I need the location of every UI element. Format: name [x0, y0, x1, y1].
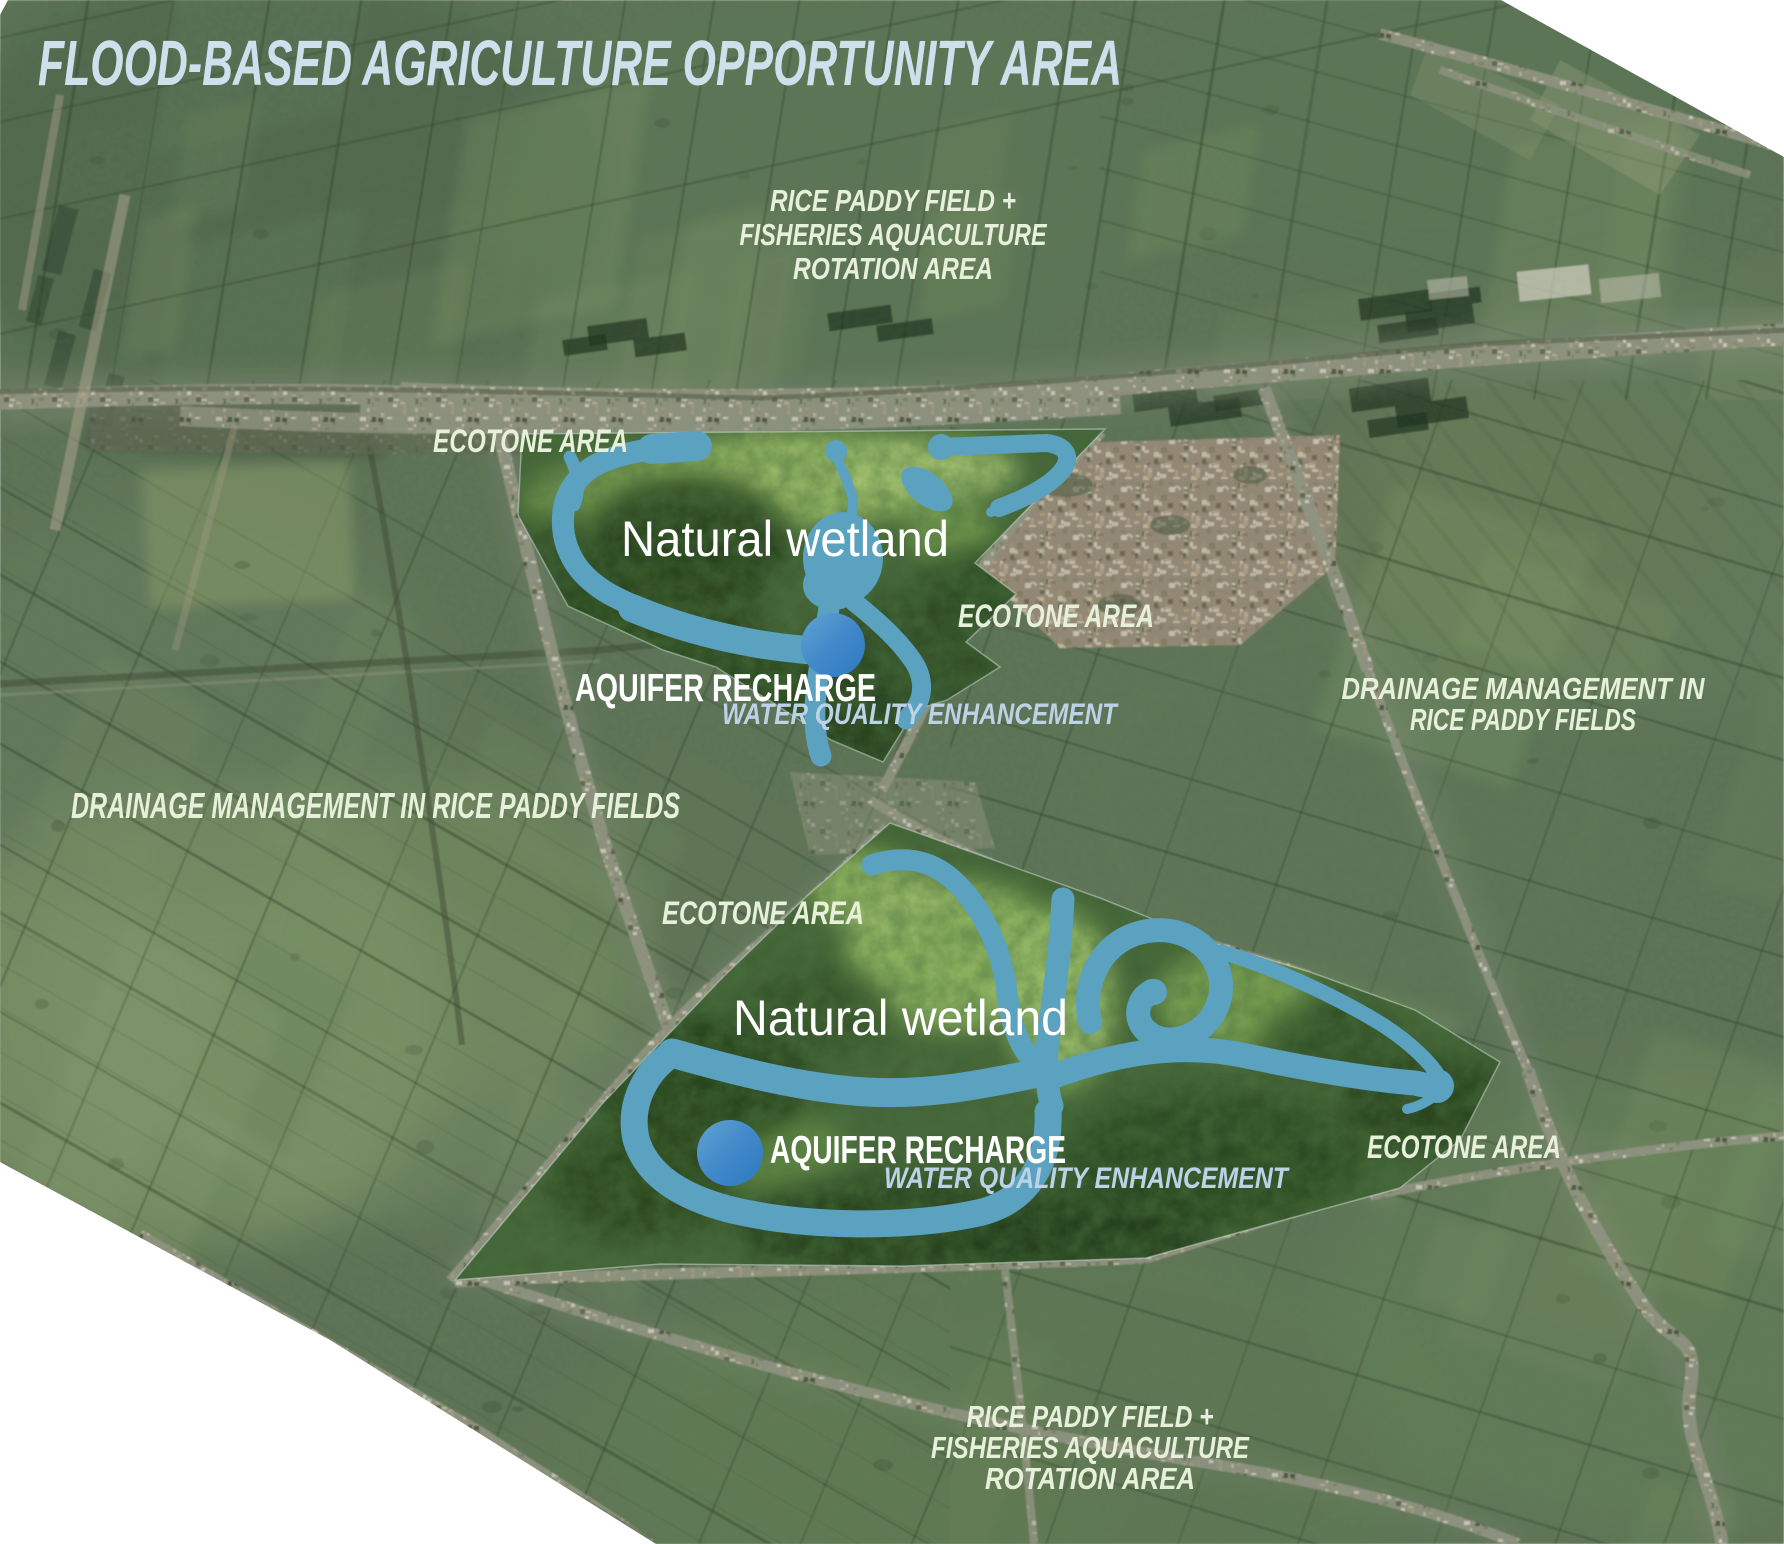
svg-text:Natural wetland: Natural wetland — [621, 511, 949, 567]
svg-text:RICE PADDY FIELD +: RICE PADDY FIELD + — [967, 1399, 1214, 1434]
svg-text:ECOTONE AREA: ECOTONE AREA — [662, 895, 864, 931]
svg-text:FLOOD-BASED AGRICULTURE OPPORT: FLOOD-BASED AGRICULTURE OPPORTUNITY AREA — [38, 27, 1122, 99]
svg-text:ROTATION AREA: ROTATION AREA — [985, 1461, 1195, 1496]
svg-text:WATER QUALITY ENHANCEMENT: WATER QUALITY ENHANCEMENT — [884, 1162, 1290, 1195]
svg-text:ECOTONE AREA: ECOTONE AREA — [958, 598, 1154, 634]
svg-text:FISHERIES AQUACULTURE: FISHERIES AQUACULTURE — [740, 217, 1048, 252]
svg-text:Natural wetland: Natural wetland — [733, 990, 1068, 1046]
svg-text:ROTATION AREA: ROTATION AREA — [793, 251, 993, 286]
svg-text:ECOTONE AREA: ECOTONE AREA — [433, 423, 628, 459]
svg-text:RICE PADDY FIELDS: RICE PADDY FIELDS — [1410, 702, 1636, 737]
svg-text:DRAINAGE MANAGEMENT IN RICE PA: DRAINAGE MANAGEMENT IN RICE PADDY FIELDS — [71, 785, 680, 826]
svg-text:DRAINAGE MANAGEMENT IN: DRAINAGE MANAGEMENT IN — [1342, 671, 1705, 706]
svg-text:ECOTONE AREA: ECOTONE AREA — [1367, 1129, 1561, 1165]
svg-text:WATER QUALITY ENHANCEMENT: WATER QUALITY ENHANCEMENT — [722, 698, 1119, 731]
svg-text:RICE PADDY FIELD +: RICE PADDY FIELD + — [770, 183, 1016, 218]
svg-text:FISHERIES AQUACULTURE: FISHERIES AQUACULTURE — [931, 1430, 1250, 1465]
